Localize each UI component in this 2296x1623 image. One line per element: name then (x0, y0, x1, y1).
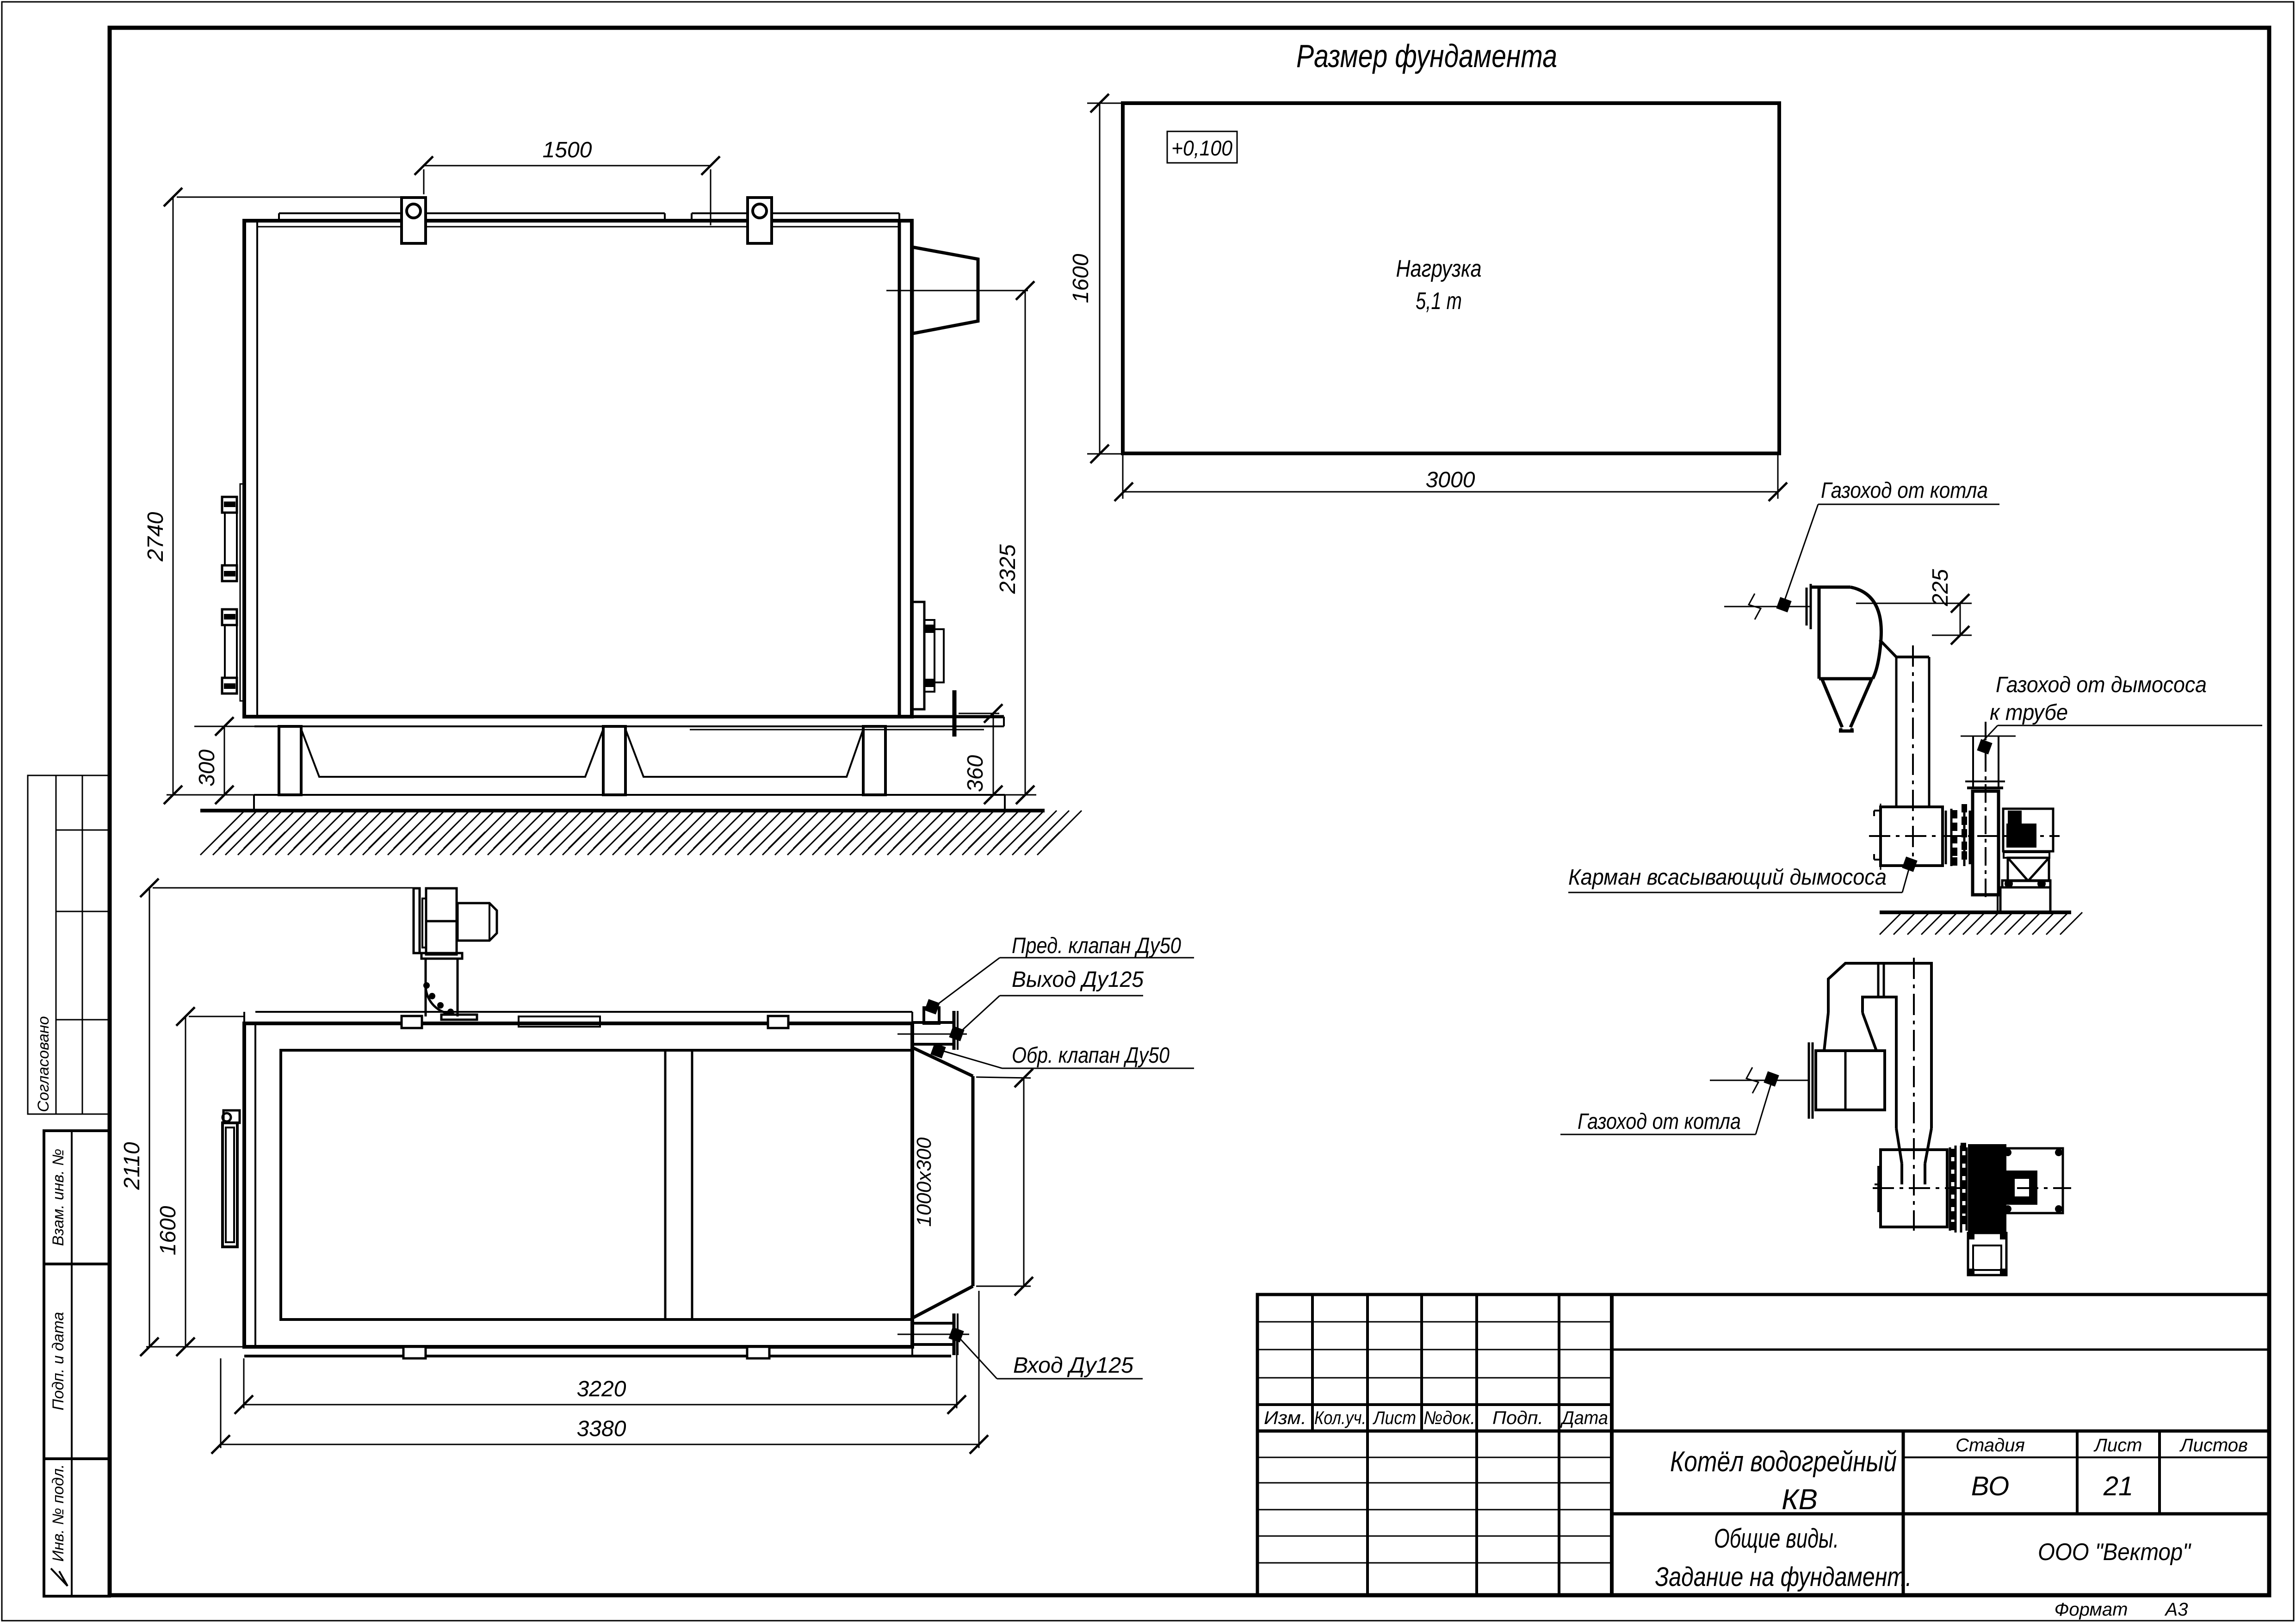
svg-text:225: 225 (1928, 569, 1953, 607)
svg-text:Нагрузка: Нагрузка (1396, 255, 1482, 282)
svg-text:Инв. № подл.: Инв. № подл. (50, 1464, 67, 1562)
svg-text:Стадия: Стадия (1956, 1435, 2025, 1456)
svg-text:5,1 т: 5,1 т (1416, 288, 1462, 315)
svg-text:Общие виды.: Общие виды. (1714, 1524, 1839, 1554)
svg-text:Формат: Формат (2055, 1599, 2128, 1620)
svg-text:Обр. клапан Ду50: Обр. клапан Ду50 (1012, 1043, 1170, 1068)
svg-text:2325: 2325 (996, 544, 1020, 594)
svg-text:2740: 2740 (143, 512, 168, 562)
svg-text:Лист: Лист (1372, 1408, 1416, 1428)
svg-text:Пред. клапан Ду50: Пред. клапан Ду50 (1012, 934, 1181, 958)
svg-text:Газоход от котла: Газоход от котла (1578, 1109, 1741, 1134)
svg-text:360: 360 (963, 755, 988, 792)
svg-text:300: 300 (195, 750, 219, 787)
svg-text:3000: 3000 (1426, 468, 1475, 492)
svg-text:Задание на фундамент.: Задание на фундамент. (1655, 1562, 1912, 1592)
svg-text:Газоход от котла: Газоход от котла (1821, 478, 1988, 503)
svg-text:ООО "Вектор": ООО "Вектор" (2038, 1539, 2191, 1566)
svg-text:Карман всасывающий дымососа: Карман всасывающий дымососа (1568, 865, 1887, 890)
svg-text:Изм.: Изм. (1264, 1408, 1306, 1428)
svg-text:Взам. инв. №: Взам. инв. № (50, 1149, 67, 1246)
svg-text:Котёл водогрейный: Котёл водогрейный (1670, 1446, 1897, 1478)
svg-text:Подп. и дата: Подп. и дата (50, 1312, 67, 1411)
svg-text:1600: 1600 (156, 1206, 180, 1255)
svg-text:А3: А3 (2165, 1599, 2188, 1620)
svg-text:№док.: №док. (1423, 1408, 1475, 1428)
svg-text:1500: 1500 (543, 138, 592, 162)
svg-text:Согласовано: Согласовано (35, 1016, 52, 1112)
svg-text:3220: 3220 (577, 1377, 626, 1401)
svg-text:Выход Ду125: Выход Ду125 (1012, 967, 1144, 992)
svg-text:Кол.уч.: Кол.уч. (1314, 1408, 1366, 1428)
svg-text:Вход Ду125: Вход Ду125 (1013, 1353, 1133, 1378)
svg-text:Лист: Лист (2093, 1435, 2142, 1456)
svg-text:2110: 2110 (120, 1142, 144, 1190)
svg-text:Подп.: Подп. (1492, 1408, 1543, 1428)
svg-text:1600: 1600 (1069, 254, 1093, 303)
svg-text:Листов: Листов (2179, 1435, 2248, 1456)
svg-text:Размер фундамента: Размер фундамента (1296, 38, 1557, 74)
svg-text:3380: 3380 (577, 1417, 626, 1441)
svg-text:Дата: Дата (1560, 1408, 1608, 1428)
svg-text:к трубе: к трубе (1990, 700, 2068, 725)
svg-text:КВ: КВ (1782, 1484, 1818, 1516)
svg-text:1000х300: 1000х300 (913, 1137, 935, 1227)
svg-text:ВО: ВО (1971, 1471, 2010, 1501)
svg-text:21: 21 (2103, 1471, 2134, 1501)
svg-text:Газоход от дымососа: Газоход от дымососа (1996, 673, 2207, 697)
svg-text:+0,100: +0,100 (1171, 136, 1232, 160)
